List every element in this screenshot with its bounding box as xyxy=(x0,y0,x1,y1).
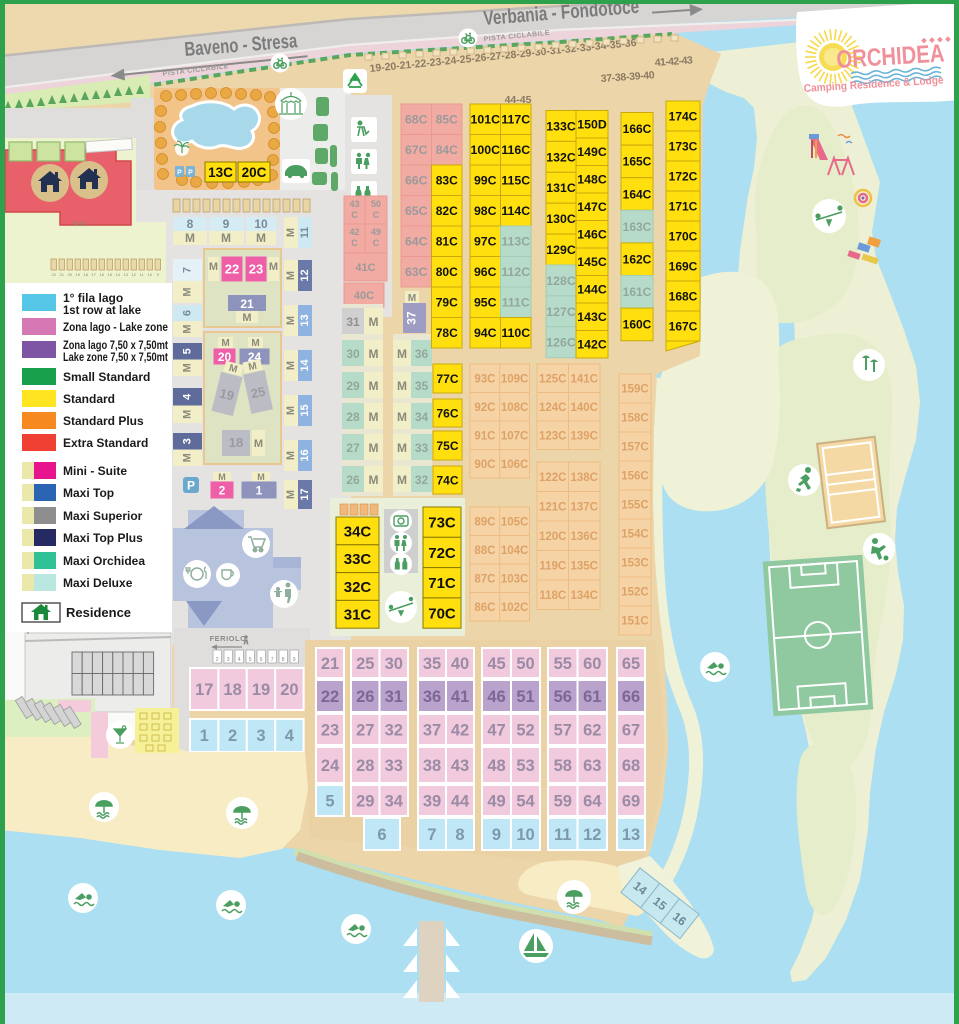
svg-text:5: 5 xyxy=(182,348,194,354)
svg-text:M: M xyxy=(182,324,194,333)
svg-text:165C: 165C xyxy=(623,155,652,169)
svg-text:27: 27 xyxy=(356,722,374,740)
svg-text:M: M xyxy=(397,410,407,424)
svg-text:64: 64 xyxy=(583,793,602,811)
svg-text:42: 42 xyxy=(349,227,359,237)
svg-text:M 33: M 33 xyxy=(74,222,86,228)
svg-text:147C: 147C xyxy=(577,200,607,214)
svg-text:54: 54 xyxy=(516,793,535,811)
svg-text:M: M xyxy=(256,231,266,245)
svg-text:6: 6 xyxy=(377,826,386,844)
svg-text:M: M xyxy=(408,293,416,304)
svg-text:7: 7 xyxy=(427,826,436,844)
svg-text:108C: 108C xyxy=(501,402,529,414)
svg-text:155C: 155C xyxy=(621,500,649,512)
svg-text:146C: 146C xyxy=(577,228,607,242)
svg-text:26: 26 xyxy=(346,473,360,487)
svg-text:1: 1 xyxy=(256,483,263,497)
svg-text:67: 67 xyxy=(622,722,640,740)
svg-text:M: M xyxy=(369,315,379,329)
svg-text:170C: 170C xyxy=(669,229,698,243)
svg-text:C: C xyxy=(351,238,358,248)
svg-text:142C: 142C xyxy=(577,338,607,352)
svg-text:15: 15 xyxy=(299,404,311,416)
svg-text:3: 3 xyxy=(182,438,194,444)
svg-text:Maxi Superior: Maxi Superior xyxy=(63,509,143,523)
svg-text:133C: 133C xyxy=(546,119,576,133)
svg-text:73C: 73C xyxy=(428,515,456,532)
svg-text:28: 28 xyxy=(356,757,374,775)
svg-text:85C: 85C xyxy=(436,113,458,127)
svg-text:6: 6 xyxy=(260,657,263,663)
svg-text:Lake zone 7,50 x 7,50mt: Lake zone 7,50 x 7,50mt xyxy=(63,350,168,364)
svg-text:M: M xyxy=(285,316,297,325)
svg-text:33: 33 xyxy=(415,441,429,455)
svg-text:52: 52 xyxy=(516,722,534,740)
svg-text:110C: 110C xyxy=(501,326,530,340)
svg-text:Standard Plus: Standard Plus xyxy=(63,414,144,428)
svg-text:145C: 145C xyxy=(577,255,607,269)
svg-text:156C: 156C xyxy=(621,471,649,483)
svg-text:Zona lago - Lake zone: Zona lago - Lake zone xyxy=(63,320,168,334)
svg-text:63: 63 xyxy=(583,757,601,775)
svg-text:58: 58 xyxy=(554,757,572,775)
svg-text:27: 27 xyxy=(346,441,360,455)
svg-text:68C: 68C xyxy=(405,113,428,127)
svg-text:1: 1 xyxy=(200,727,209,745)
svg-text:159C: 159C xyxy=(621,384,649,396)
svg-text:15: 15 xyxy=(107,272,112,277)
svg-text:51: 51 xyxy=(516,688,534,706)
svg-text:M: M xyxy=(369,473,379,487)
svg-text:138C: 138C xyxy=(571,472,599,484)
svg-text:M: M xyxy=(269,261,278,273)
svg-text:8: 8 xyxy=(187,217,194,231)
svg-text:22: 22 xyxy=(321,688,339,706)
svg-text:18: 18 xyxy=(223,681,241,699)
svg-text:114C: 114C xyxy=(501,204,530,218)
svg-text:137C: 137C xyxy=(571,501,599,513)
svg-text:17: 17 xyxy=(195,681,213,699)
svg-text:167C: 167C xyxy=(669,319,698,333)
svg-text:31: 31 xyxy=(346,315,360,329)
svg-text:7: 7 xyxy=(182,267,194,273)
svg-text:17: 17 xyxy=(299,488,311,500)
svg-text:66C: 66C xyxy=(405,174,428,188)
svg-text:149C: 149C xyxy=(577,145,607,159)
svg-text:M: M xyxy=(369,379,379,393)
svg-text:109C: 109C xyxy=(501,373,529,385)
svg-text:148C: 148C xyxy=(577,173,607,187)
svg-text:19: 19 xyxy=(252,681,270,699)
svg-text:C: C xyxy=(373,210,380,220)
svg-text:M: M xyxy=(369,410,379,424)
svg-text:Maxi Orchidea: Maxi Orchidea xyxy=(63,554,145,568)
svg-text:19: 19 xyxy=(75,272,80,277)
svg-text:123C: 123C xyxy=(539,430,567,442)
svg-text:M: M xyxy=(285,451,297,460)
svg-text:11: 11 xyxy=(554,826,571,844)
svg-text:131C: 131C xyxy=(546,181,576,195)
svg-text:P: P xyxy=(177,170,182,177)
svg-text:M: M xyxy=(209,261,218,273)
svg-text:M: M xyxy=(182,363,194,372)
svg-text:23: 23 xyxy=(249,262,263,277)
svg-text:M: M xyxy=(285,361,297,370)
svg-text:18: 18 xyxy=(83,272,88,277)
svg-text:M: M xyxy=(221,338,229,349)
svg-text:40: 40 xyxy=(451,655,469,673)
svg-text:38: 38 xyxy=(423,757,441,775)
svg-text:84C: 84C xyxy=(436,143,458,157)
svg-text:M: M xyxy=(254,438,263,450)
svg-text:41C: 41C xyxy=(355,262,375,274)
svg-text:Small Standard: Small Standard xyxy=(63,370,150,384)
svg-text:157C: 157C xyxy=(621,442,649,454)
svg-text:117C: 117C xyxy=(501,113,530,127)
svg-text:124C: 124C xyxy=(539,402,567,414)
svg-text:Mini - Suite: Mini - Suite xyxy=(63,464,127,478)
svg-text:M: M xyxy=(285,228,297,237)
svg-text:30: 30 xyxy=(346,347,360,361)
svg-text:97C: 97C xyxy=(474,235,497,249)
svg-text:9: 9 xyxy=(492,826,501,844)
svg-text:150D: 150D xyxy=(577,118,607,132)
svg-text:M: M xyxy=(257,472,265,482)
svg-text:29: 29 xyxy=(346,379,360,393)
svg-text:M: M xyxy=(369,441,379,455)
svg-text:62: 62 xyxy=(583,722,601,740)
svg-text:16: 16 xyxy=(299,449,311,461)
svg-text:33C: 33C xyxy=(344,551,372,568)
svg-text:79C: 79C xyxy=(436,296,458,310)
svg-text:53: 53 xyxy=(516,757,534,775)
svg-text:105C: 105C xyxy=(501,516,529,528)
svg-text:31C: 31C xyxy=(344,607,372,624)
svg-text:36: 36 xyxy=(415,347,429,361)
svg-text:113C: 113C xyxy=(501,235,530,249)
svg-text:10: 10 xyxy=(516,826,534,844)
svg-text:8: 8 xyxy=(455,826,464,844)
svg-text:87C: 87C xyxy=(474,573,495,585)
svg-text:121C: 121C xyxy=(539,501,567,513)
svg-text:128C: 128C xyxy=(546,274,576,288)
svg-text:126C: 126C xyxy=(546,336,576,350)
svg-text:13: 13 xyxy=(299,314,311,326)
svg-text:125C: 125C xyxy=(539,373,567,385)
svg-text:20: 20 xyxy=(280,681,298,699)
svg-text:136C: 136C xyxy=(571,531,599,543)
svg-text:95C: 95C xyxy=(474,296,497,310)
svg-text:44: 44 xyxy=(451,793,470,811)
svg-text:92C: 92C xyxy=(474,402,495,414)
svg-text:50: 50 xyxy=(371,199,381,209)
svg-text:Standard: Standard xyxy=(63,392,115,406)
svg-text:174C: 174C xyxy=(669,109,698,123)
svg-text:22: 22 xyxy=(225,262,239,277)
svg-text:2: 2 xyxy=(216,657,219,663)
svg-text:93C: 93C xyxy=(474,373,495,385)
svg-text:M: M xyxy=(182,453,194,462)
svg-text:119C: 119C xyxy=(539,560,566,572)
svg-text:32C: 32C xyxy=(344,579,372,596)
svg-text:20: 20 xyxy=(67,272,72,277)
svg-text:91C: 91C xyxy=(474,430,495,442)
svg-text:28: 28 xyxy=(346,410,360,424)
svg-text:172C: 172C xyxy=(669,169,698,183)
svg-text:29: 29 xyxy=(356,793,374,811)
svg-text:8: 8 xyxy=(282,657,285,663)
svg-text:129C: 129C xyxy=(546,243,576,257)
svg-text:21: 21 xyxy=(321,655,339,673)
svg-text:2: 2 xyxy=(219,483,226,497)
svg-text:18: 18 xyxy=(229,435,243,450)
svg-text:M: M xyxy=(285,271,297,280)
svg-text:M: M xyxy=(397,347,407,361)
svg-text:103C: 103C xyxy=(501,573,529,585)
svg-text:98C: 98C xyxy=(474,204,497,218)
svg-text:154C: 154C xyxy=(621,529,649,541)
svg-text:89C: 89C xyxy=(474,516,495,528)
svg-text:40C: 40C xyxy=(354,290,374,302)
svg-text:158C: 158C xyxy=(621,413,649,425)
svg-text:107C: 107C xyxy=(501,430,529,442)
svg-text:M: M xyxy=(369,347,379,361)
svg-text:42: 42 xyxy=(451,722,469,740)
svg-text:24: 24 xyxy=(321,757,340,775)
svg-text:12: 12 xyxy=(583,826,601,844)
svg-text:164C: 164C xyxy=(623,187,652,201)
svg-text:5: 5 xyxy=(325,793,334,811)
svg-text:94C: 94C xyxy=(474,326,497,340)
svg-text:49: 49 xyxy=(371,227,381,237)
svg-text:C: C xyxy=(351,210,358,220)
svg-text:139C: 139C xyxy=(571,430,599,442)
svg-text:59: 59 xyxy=(554,793,572,811)
svg-text:4: 4 xyxy=(238,657,241,663)
svg-text:5: 5 xyxy=(249,657,252,663)
svg-text:43: 43 xyxy=(451,757,469,775)
svg-text:37: 37 xyxy=(423,722,441,740)
svg-text:43: 43 xyxy=(349,199,359,209)
svg-text:10: 10 xyxy=(147,272,152,277)
svg-text:11: 11 xyxy=(299,227,311,239)
svg-text:21: 21 xyxy=(59,272,64,277)
svg-text:16: 16 xyxy=(99,272,104,277)
svg-text:M: M xyxy=(251,338,259,349)
svg-text:118C: 118C xyxy=(539,590,566,602)
svg-text:49: 49 xyxy=(487,793,505,811)
svg-text:47: 47 xyxy=(487,722,505,740)
svg-text:143C: 143C xyxy=(577,310,607,324)
svg-text:70C: 70C xyxy=(428,605,456,622)
svg-text:86C: 86C xyxy=(474,602,495,614)
svg-text:166C: 166C xyxy=(623,122,652,136)
svg-text:75C: 75C xyxy=(436,439,458,453)
svg-text:127C: 127C xyxy=(546,305,576,319)
svg-text:12: 12 xyxy=(131,272,136,277)
svg-text:34: 34 xyxy=(415,410,429,424)
svg-text:Extra Standard: Extra Standard xyxy=(63,436,148,450)
svg-text:33: 33 xyxy=(385,757,403,775)
svg-text:69: 69 xyxy=(622,793,640,811)
svg-text:35: 35 xyxy=(415,379,429,393)
svg-text:21: 21 xyxy=(240,297,254,311)
svg-text:64C: 64C xyxy=(405,235,428,249)
svg-text:76C: 76C xyxy=(436,406,458,420)
svg-text:122C: 122C xyxy=(539,472,567,484)
svg-text:60: 60 xyxy=(583,655,601,673)
svg-text:66: 66 xyxy=(622,688,640,706)
svg-text:46: 46 xyxy=(487,688,505,706)
svg-text:M: M xyxy=(218,472,226,482)
svg-text:61: 61 xyxy=(583,688,601,706)
svg-text:45: 45 xyxy=(487,655,505,673)
svg-text:M: M xyxy=(397,473,407,487)
svg-text:135C: 135C xyxy=(571,560,599,572)
svg-text:FERIOLO: FERIOLO xyxy=(210,634,247,643)
svg-text:100C: 100C xyxy=(471,143,501,157)
svg-text:77C: 77C xyxy=(436,372,458,386)
svg-text:111C: 111C xyxy=(502,296,530,310)
svg-text:35: 35 xyxy=(423,655,441,673)
svg-text:23: 23 xyxy=(321,722,339,740)
svg-text:48: 48 xyxy=(487,757,505,775)
svg-text:132C: 132C xyxy=(546,150,576,164)
svg-text:171C: 171C xyxy=(669,199,698,213)
svg-text:74C: 74C xyxy=(436,473,458,487)
svg-text:134C: 134C xyxy=(571,590,599,602)
svg-text:65: 65 xyxy=(622,655,640,673)
svg-text:22: 22 xyxy=(51,272,56,277)
svg-text:102C: 102C xyxy=(501,602,529,614)
svg-text:26: 26 xyxy=(356,688,374,706)
svg-text:13: 13 xyxy=(123,272,128,277)
svg-text:17: 17 xyxy=(91,272,96,277)
svg-text:M: M xyxy=(242,312,251,324)
svg-text:C: C xyxy=(373,238,380,248)
svg-text:32: 32 xyxy=(385,722,403,740)
svg-text:20C: 20C xyxy=(242,165,267,180)
svg-text:130C: 130C xyxy=(546,212,576,226)
svg-text:83C: 83C xyxy=(436,174,458,188)
svg-text:65C: 65C xyxy=(405,204,428,218)
svg-text:9: 9 xyxy=(223,217,230,231)
svg-text:7: 7 xyxy=(271,657,274,663)
svg-text:55: 55 xyxy=(554,655,572,673)
svg-text:25: 25 xyxy=(356,655,374,673)
svg-text:141C: 141C xyxy=(571,373,599,385)
svg-text:39: 39 xyxy=(423,793,441,811)
svg-text:101C: 101C xyxy=(471,113,501,127)
svg-text:4: 4 xyxy=(285,727,295,745)
svg-text:34C: 34C xyxy=(344,523,372,540)
svg-text:12: 12 xyxy=(299,269,311,281)
svg-text:72C: 72C xyxy=(428,545,456,562)
svg-text:32: 32 xyxy=(415,473,429,487)
svg-text:63C: 63C xyxy=(405,265,428,279)
svg-text:31: 31 xyxy=(385,688,403,706)
svg-text:4: 4 xyxy=(182,393,194,400)
svg-text:M: M xyxy=(285,406,297,415)
svg-text:10: 10 xyxy=(254,217,268,231)
svg-text:68: 68 xyxy=(622,757,640,775)
svg-text:Maxi Deluxe: Maxi Deluxe xyxy=(63,576,133,590)
svg-text:13C: 13C xyxy=(208,165,233,180)
svg-text:Maxi Top Plus: Maxi Top Plus xyxy=(63,531,143,545)
svg-text:82C: 82C xyxy=(436,204,458,218)
svg-text:120C: 120C xyxy=(539,531,567,543)
svg-text:67C: 67C xyxy=(405,143,428,157)
svg-text:173C: 173C xyxy=(669,139,698,153)
svg-text:96C: 96C xyxy=(474,265,497,279)
svg-text:34: 34 xyxy=(385,793,404,811)
svg-text:104C: 104C xyxy=(501,545,529,557)
svg-text:14: 14 xyxy=(115,272,120,277)
svg-text:88C: 88C xyxy=(474,545,495,557)
svg-text:161C: 161C xyxy=(623,285,652,299)
svg-text:M: M xyxy=(185,231,195,245)
svg-text:13: 13 xyxy=(622,826,640,844)
svg-text:50: 50 xyxy=(516,655,534,673)
svg-text:37: 37 xyxy=(405,311,419,325)
svg-text:106C: 106C xyxy=(501,459,529,471)
svg-text:144C: 144C xyxy=(577,283,607,297)
svg-text:9: 9 xyxy=(293,657,296,663)
svg-text:168C: 168C xyxy=(669,289,698,303)
svg-text:M: M xyxy=(221,231,231,245)
svg-text:3: 3 xyxy=(256,727,265,745)
svg-text:Maxi Top: Maxi Top xyxy=(63,486,114,500)
svg-text:14: 14 xyxy=(299,359,311,372)
svg-text:112C: 112C xyxy=(501,265,530,279)
svg-text:71C: 71C xyxy=(428,575,456,592)
svg-text:M: M xyxy=(397,379,407,393)
svg-text:116C: 116C xyxy=(501,143,530,157)
svg-text:80C: 80C xyxy=(436,265,458,279)
svg-text:Residence: Residence xyxy=(66,605,131,620)
svg-text:163C: 163C xyxy=(623,220,652,234)
svg-text:M: M xyxy=(182,410,194,419)
svg-text:30: 30 xyxy=(385,655,403,673)
svg-text:6: 6 xyxy=(182,310,194,316)
svg-text:36: 36 xyxy=(423,688,441,706)
svg-text:81C: 81C xyxy=(436,235,458,249)
svg-text:162C: 162C xyxy=(623,253,652,267)
svg-text:25: 25 xyxy=(249,384,266,402)
svg-text:M: M xyxy=(182,287,194,296)
svg-text:3: 3 xyxy=(227,657,230,663)
svg-text:169C: 169C xyxy=(669,259,698,273)
svg-text:115C: 115C xyxy=(501,174,530,188)
svg-text:P: P xyxy=(188,170,193,177)
svg-text:1st row at lake: 1st row at lake xyxy=(63,303,141,317)
svg-text:153C: 153C xyxy=(621,558,649,570)
svg-text:140C: 140C xyxy=(571,402,599,414)
svg-text:90C: 90C xyxy=(474,459,495,471)
svg-text:56: 56 xyxy=(554,688,572,706)
svg-text:57: 57 xyxy=(554,722,572,740)
svg-text:151C: 151C xyxy=(621,616,649,628)
svg-text:2: 2 xyxy=(228,727,237,745)
svg-text:152C: 152C xyxy=(621,587,649,599)
svg-text:78C: 78C xyxy=(436,326,458,340)
svg-text:160C: 160C xyxy=(623,318,652,332)
svg-text:M: M xyxy=(397,441,407,455)
svg-text:41: 41 xyxy=(451,688,469,706)
svg-text:P: P xyxy=(187,479,195,493)
svg-text:M: M xyxy=(285,490,297,499)
